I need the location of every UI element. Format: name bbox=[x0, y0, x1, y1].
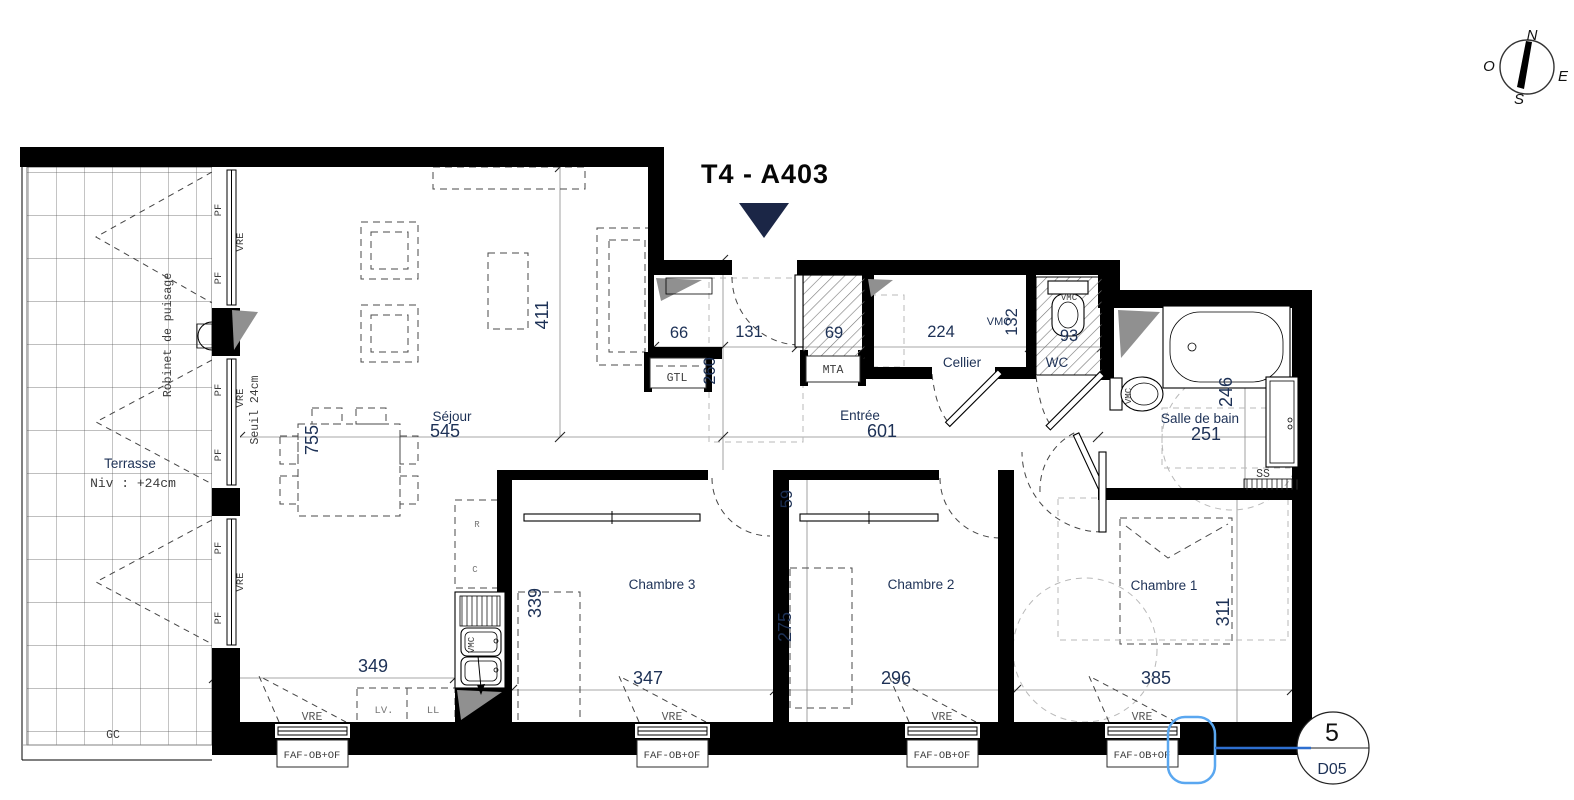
room-label-ch2: Chambre 2 bbox=[888, 577, 955, 592]
vre-label: VRE bbox=[1132, 711, 1153, 724]
dim-ch2-closet: 59 bbox=[778, 490, 796, 508]
furniture bbox=[280, 167, 1302, 732]
cellier-appliance bbox=[870, 295, 904, 367]
vmc-label: VMC bbox=[1061, 293, 1078, 303]
dim-entry-door: 131 bbox=[735, 323, 763, 341]
dim-ch2-height: 275 bbox=[775, 612, 795, 642]
terrace-area bbox=[22, 147, 212, 760]
sideboard bbox=[433, 167, 585, 189]
threshold-label: Seuil 24cm bbox=[249, 375, 262, 444]
wc-door-leaf bbox=[1046, 372, 1104, 430]
ss-label: SS bbox=[1256, 468, 1270, 481]
room-label-wc: WC bbox=[1046, 355, 1069, 370]
dim-kitchen-width: 349 bbox=[358, 656, 388, 676]
tap-label: Robinet de puisage bbox=[162, 273, 175, 397]
dim-ch1-width: 385 bbox=[1141, 668, 1171, 688]
window-type-label: FAF-OB+OF bbox=[1114, 750, 1171, 762]
dim-cellier-width: 224 bbox=[927, 323, 955, 341]
ch3-door-arc bbox=[712, 478, 770, 536]
sofa bbox=[597, 228, 653, 365]
window-type-label: FAF-OB+OF bbox=[284, 750, 341, 762]
compass-needle bbox=[1517, 41, 1532, 89]
pf-label: PF bbox=[213, 612, 225, 625]
lv-label: LV. bbox=[375, 705, 394, 717]
vmc-label: VMC bbox=[1124, 387, 1134, 404]
dim-entree-width: 601 bbox=[867, 421, 897, 441]
window-bottom-3 bbox=[905, 724, 980, 738]
gc-label: GC bbox=[106, 729, 120, 742]
room-label-cellier: Cellier bbox=[943, 355, 982, 370]
pf-label: PF bbox=[213, 542, 225, 555]
window-type-label: FAF-OB+OF bbox=[914, 750, 971, 762]
room-label-ch1: Chambre 1 bbox=[1131, 578, 1198, 593]
window-type-label: FAF-OB+OF bbox=[644, 750, 701, 762]
pf-label: PF bbox=[213, 204, 225, 217]
dim-bath-width: 251 bbox=[1191, 424, 1221, 444]
dim-ch1-height: 311 bbox=[1213, 598, 1233, 627]
pf-label: PF bbox=[213, 384, 225, 397]
compass-south: S bbox=[1514, 91, 1524, 108]
armchair bbox=[361, 222, 418, 279]
armchair bbox=[361, 305, 418, 362]
compass-icon: N O E S bbox=[1483, 27, 1569, 108]
unit-triangle-icon bbox=[739, 203, 789, 238]
window-bottom-1 bbox=[275, 724, 350, 738]
entry-duct bbox=[803, 275, 865, 359]
cellier-door-arc bbox=[932, 374, 950, 424]
pf-label: PF bbox=[213, 449, 225, 462]
dim-sejour-height: 755 bbox=[302, 425, 322, 455]
kitchen-sink bbox=[455, 592, 505, 695]
bathtub-icon bbox=[1163, 306, 1290, 388]
coffee-table bbox=[488, 253, 528, 329]
terrace-level-label: Niv : +24cm bbox=[90, 476, 176, 491]
vre-label: VRE bbox=[302, 711, 323, 724]
entrance-door-leaf bbox=[795, 275, 803, 347]
vmc-label: VMC bbox=[467, 636, 477, 653]
bath-door-arc bbox=[1040, 432, 1076, 492]
ch1-door-leaf bbox=[1099, 452, 1106, 532]
window-left-2 bbox=[212, 356, 240, 488]
vanity-cabinet bbox=[1266, 377, 1298, 467]
wc-door-arc bbox=[1036, 376, 1050, 424]
dim-bath-height: 246 bbox=[1216, 377, 1236, 407]
vre-label: VRE bbox=[235, 389, 247, 408]
appliance-r-label: R bbox=[474, 520, 480, 530]
compass-west: O bbox=[1483, 58, 1495, 75]
compass-north: N bbox=[1527, 27, 1538, 44]
window-bottom-2 bbox=[635, 724, 710, 738]
floor-plan-page: Terrasse Niv : +24cm GC Robinet de puisa… bbox=[0, 0, 1574, 800]
cellier-door-leaf bbox=[946, 370, 1003, 427]
gtl-label: GTL bbox=[667, 372, 688, 385]
dim-sejour-height-right: 411 bbox=[532, 301, 552, 330]
vre-label: VRE bbox=[235, 233, 247, 252]
dining-table bbox=[280, 408, 418, 516]
vre-label: VRE bbox=[932, 711, 953, 724]
sheet-code: D05 bbox=[1317, 761, 1346, 778]
mta-label: MTA bbox=[823, 364, 844, 377]
dim-sejour-width: 545 bbox=[430, 421, 460, 441]
appliance-c-label: C bbox=[472, 565, 478, 575]
dim-niche-height: 260 bbox=[701, 357, 719, 385]
dim-wc: 93 bbox=[1060, 327, 1078, 345]
floor-plan: Terrasse Niv : +24cm GC Robinet de puisa… bbox=[0, 0, 1574, 800]
terrace-label: Terrasse bbox=[104, 456, 156, 471]
compass-east: E bbox=[1558, 68, 1569, 85]
title-block: T4 - A403 bbox=[701, 159, 829, 238]
dim-niche: 66 bbox=[670, 324, 688, 342]
bed bbox=[790, 568, 852, 708]
windows bbox=[212, 167, 1180, 767]
vre-label: VRE bbox=[235, 573, 247, 592]
dim-ch3-width: 347 bbox=[633, 668, 663, 688]
dim-ch2-width: 296 bbox=[881, 668, 911, 688]
room-label-ch3: Chambre 3 bbox=[629, 577, 696, 592]
sheet-number: 5 bbox=[1325, 719, 1339, 747]
toilet-icon bbox=[1110, 377, 1163, 411]
ch2-door-arc bbox=[940, 478, 1000, 538]
dim-cellier-height: 132 bbox=[1003, 308, 1021, 336]
page-title: T4 - A403 bbox=[701, 159, 829, 189]
pf-label: PF bbox=[213, 272, 225, 285]
towel-dryer bbox=[1244, 479, 1298, 490]
ll-label: LL bbox=[427, 705, 440, 717]
vre-label: VRE bbox=[662, 711, 683, 724]
dim-ch3-height: 339 bbox=[525, 588, 545, 618]
dim-duct: 69 bbox=[825, 324, 843, 342]
